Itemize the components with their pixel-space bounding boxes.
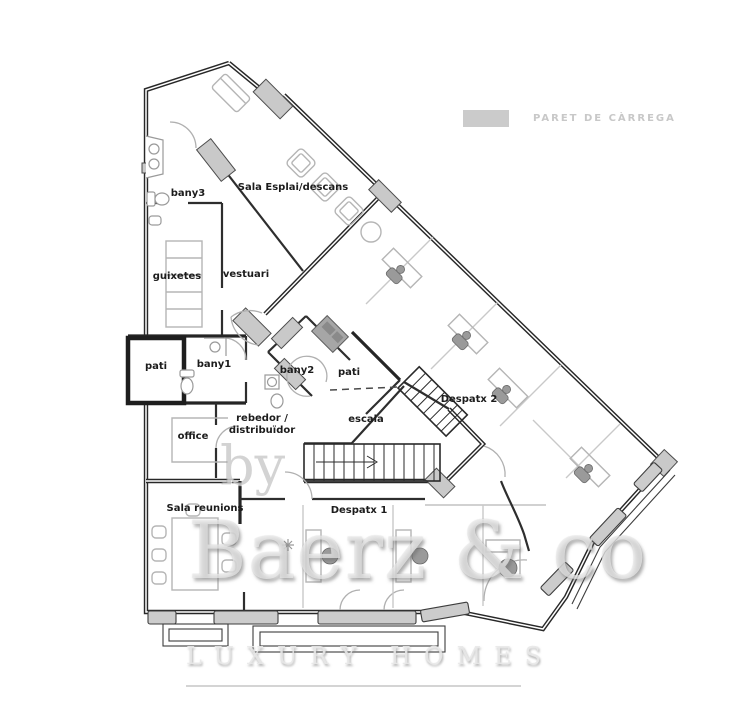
- label-office: office: [178, 431, 209, 442]
- sink-counter: [146, 136, 163, 178]
- toilet-tank: [180, 370, 194, 377]
- label-sala-esplai: Sala Esplai/descans: [238, 182, 348, 193]
- chair: [322, 548, 338, 564]
- furniture-sala-esplai: [211, 73, 381, 242]
- lockers: [166, 241, 202, 327]
- sink: [149, 144, 159, 154]
- label-pati-center: pati: [338, 367, 360, 378]
- legend-label: PARET DE CÀRREGA: [533, 113, 676, 124]
- toilet-tank: [147, 192, 155, 206]
- furniture-sala-reunions: [152, 504, 236, 590]
- windows: [148, 462, 663, 624]
- floorplan-page: bany3 Sala Esplai/descans guixetes vestu…: [0, 0, 730, 720]
- load-bearing-walls: [142, 79, 677, 498]
- watermark-divider-line: [186, 685, 521, 687]
- label-vestuari: vestuari: [223, 269, 269, 280]
- sink: [210, 342, 220, 352]
- chair: [412, 548, 428, 564]
- label-sala-reunions: Sala reunions: [167, 503, 244, 514]
- label-escala: escala: [348, 414, 384, 425]
- desk: [565, 447, 610, 492]
- label-rebedor-line1: rebedor /: [236, 413, 288, 424]
- desk: [443, 314, 488, 359]
- toilet: [155, 193, 169, 205]
- sofa: [211, 73, 251, 113]
- label-bany3: bany3: [171, 188, 206, 199]
- copier: [312, 316, 349, 353]
- label-despatx1: Despatx 1: [331, 505, 388, 516]
- floorplan-drawing: bany3 Sala Esplai/descans guixetes vestu…: [0, 0, 730, 720]
- sink: [268, 378, 277, 387]
- furniture-guixetes: [166, 241, 202, 327]
- legend: PARET DE CÀRREGA: [463, 110, 676, 127]
- label-pati-left: pati: [145, 361, 167, 372]
- label-bany2: bany2: [280, 365, 315, 376]
- room-labels: bany3 Sala Esplai/descans guixetes vestu…: [145, 182, 497, 516]
- toilet: [181, 378, 193, 394]
- armchair: [333, 195, 364, 226]
- load-bearing-wall-swatch: [463, 110, 509, 127]
- chair: [499, 559, 517, 577]
- meeting-table: [172, 518, 218, 590]
- urinal: [149, 216, 161, 225]
- stair-direction-arrow: [316, 456, 377, 468]
- staircase: [304, 367, 467, 481]
- label-rebedor-line2: distribuïdor: [229, 425, 295, 436]
- round-table: [361, 222, 381, 242]
- sink: [149, 159, 159, 169]
- desk: [306, 530, 321, 582]
- label-guixetes: guixetes: [153, 271, 202, 282]
- toilet: [271, 394, 283, 408]
- plant-icon: [282, 539, 294, 551]
- desk: [396, 530, 411, 582]
- armchair: [285, 147, 316, 178]
- label-bany1: bany1: [197, 359, 232, 370]
- label-despatx2: Despatx 2: [441, 394, 498, 405]
- desk: [483, 368, 528, 413]
